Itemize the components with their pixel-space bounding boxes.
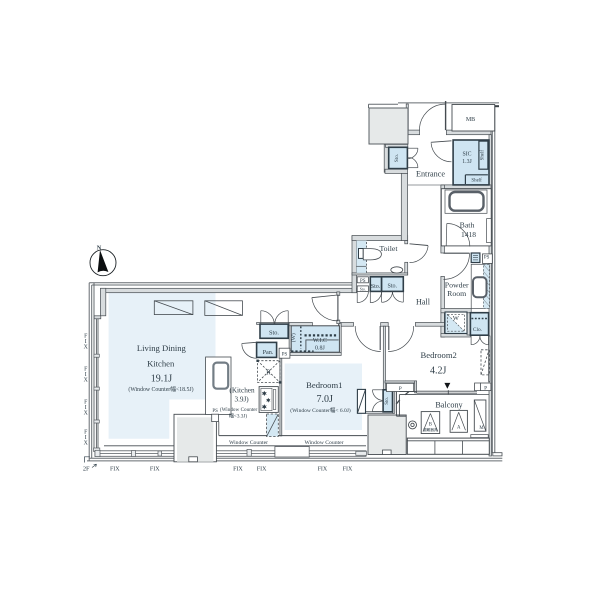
svg-text:(Window Counter幅<18.5J): (Window Counter幅<18.5J) xyxy=(128,385,193,393)
svg-text:Bedroom2: Bedroom2 xyxy=(421,350,457,360)
svg-text:Kitchen: Kitchen xyxy=(147,358,175,368)
svg-text:幅<3.3J): 幅<3.3J) xyxy=(229,411,248,419)
svg-text:Bedroom1: Bedroom1 xyxy=(306,380,342,390)
svg-text:Sto.: Sto. xyxy=(394,154,400,162)
svg-text:A: A xyxy=(457,426,461,431)
svg-text:(Window Counter幅< 6.0J): (Window Counter幅< 6.0J) xyxy=(290,406,351,414)
svg-text:PS: PS xyxy=(212,409,218,414)
svg-text:1418: 1418 xyxy=(461,230,476,239)
svg-text:MB: MB xyxy=(466,117,475,123)
svg-text:4.2J: 4.2J xyxy=(430,366,447,377)
svg-text:2F: 2F xyxy=(83,466,90,473)
svg-text:Window Counter: Window Counter xyxy=(229,440,268,446)
svg-text:0.8J: 0.8J xyxy=(315,346,326,352)
svg-text:(Kitchen: (Kitchen xyxy=(229,386,255,394)
svg-text:W.I.C: W.I.C xyxy=(313,338,327,344)
svg-text:B: B xyxy=(429,423,432,428)
svg-text:R: R xyxy=(266,369,271,377)
svg-text:FIX: FIX xyxy=(343,467,353,473)
svg-text:Clo.: Clo. xyxy=(473,327,482,333)
svg-text:Sto.: Sto. xyxy=(371,284,381,290)
svg-text:W: W xyxy=(453,315,460,322)
svg-text:Balcony: Balcony xyxy=(435,401,463,410)
svg-text:FIX: FIX xyxy=(318,467,328,473)
svg-text:PS: PS xyxy=(360,279,366,284)
svg-text:Sto.: Sto. xyxy=(385,397,390,405)
svg-text:Window Counter: Window Counter xyxy=(304,440,343,446)
svg-text:FIX: FIX xyxy=(257,467,267,473)
svg-text:Living Dining: Living Dining xyxy=(137,343,187,353)
svg-text:Sto.: Sto. xyxy=(269,330,279,337)
svg-text:P: P xyxy=(399,386,402,392)
svg-text:Toilet: Toilet xyxy=(379,244,398,253)
svg-text:19.1J: 19.1J xyxy=(151,374,173,385)
svg-text:FIX: FIX xyxy=(110,467,120,473)
svg-text:(W): (W) xyxy=(290,333,297,342)
svg-text:PS: PS xyxy=(282,353,288,358)
svg-text:P: P xyxy=(484,385,487,391)
svg-text:Sto.: Sto. xyxy=(388,284,398,290)
svg-text:N: N xyxy=(97,244,102,251)
svg-text:Shelf: Shelf xyxy=(481,150,486,161)
svg-text:M: M xyxy=(479,426,484,431)
svg-text:Bath: Bath xyxy=(460,221,475,230)
svg-text:Pan.: Pan. xyxy=(263,349,274,356)
svg-text:SIC: SIC xyxy=(462,152,471,158)
svg-text:PS: PS xyxy=(484,256,490,261)
svg-text:Sto.: Sto. xyxy=(360,287,366,291)
svg-text:(Window Counter: (Window Counter xyxy=(220,406,258,413)
svg-text:FIX: FIX xyxy=(150,467,160,473)
svg-text:Hall: Hall xyxy=(416,298,431,307)
svg-text:Entrance: Entrance xyxy=(416,170,445,179)
svg-text:1.3J: 1.3J xyxy=(462,159,472,165)
svg-text:FIX: FIX xyxy=(233,467,243,473)
svg-text:避難器具: 避難器具 xyxy=(423,427,438,432)
svg-text:Shelf: Shelf xyxy=(471,179,482,184)
svg-text:3.9J): 3.9J) xyxy=(235,396,250,404)
svg-text:7.0J: 7.0J xyxy=(316,394,333,405)
svg-text:Room: Room xyxy=(447,289,466,298)
